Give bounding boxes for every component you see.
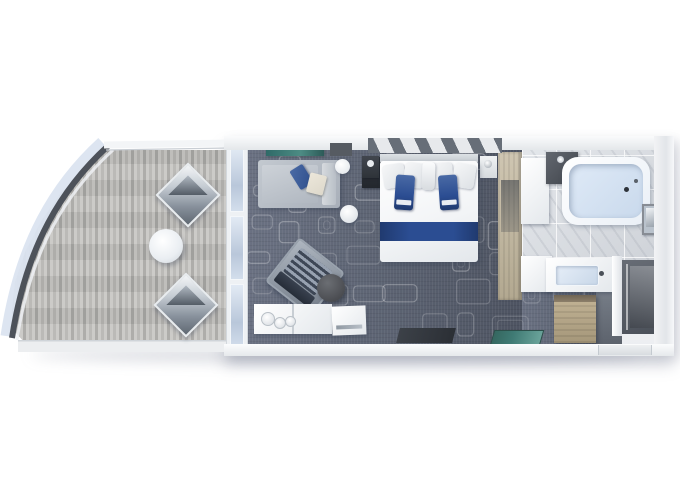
glass-pane: [230, 147, 244, 212]
bed-runner: [380, 222, 478, 241]
entry-closet: [554, 295, 596, 343]
blue-accent-pillow: [438, 174, 459, 210]
bathtub-faucet: [634, 179, 638, 183]
picture-art: [646, 208, 654, 227]
glassware: [274, 317, 286, 329]
entrance-door: [598, 345, 652, 355]
stateroom-floorplan: [0, 0, 680, 486]
glassware: [285, 316, 296, 327]
glass-pane: [230, 216, 244, 281]
sofa: [258, 160, 340, 208]
right-wall: [654, 136, 674, 356]
glassware: [261, 312, 275, 326]
glass-pane: [230, 284, 244, 349]
blue-accent-pillow: [394, 174, 415, 210]
bathtub: [562, 157, 650, 225]
nightstand-right: [480, 156, 497, 178]
wardrobe-interior: [501, 180, 519, 232]
bathtub-drain: [624, 187, 629, 192]
partition-wall: [612, 256, 622, 336]
console: [254, 304, 332, 334]
nightstand-left: [362, 156, 379, 178]
spotlight: [557, 156, 564, 163]
wall-lamp: [335, 159, 350, 174]
folded-towel: [422, 162, 436, 190]
side-table: [340, 205, 358, 223]
tall-cabinet: [521, 158, 549, 224]
accent-wall-top: [368, 138, 502, 153]
table-detail: [336, 325, 362, 330]
closet-top: [554, 295, 596, 302]
vanity: [546, 258, 612, 292]
double-bed: [380, 161, 478, 262]
floor-mat: [396, 328, 456, 343]
ottoman: [317, 274, 345, 302]
wall-segment-dark: [330, 143, 352, 152]
sink-basin: [555, 265, 599, 286]
coffee-table: [332, 305, 367, 335]
sink-faucet: [599, 271, 604, 276]
bathtub-basin: [569, 164, 643, 218]
nightstand-lamp: [367, 160, 374, 167]
wardrobe: [498, 152, 522, 300]
nightstand-lamp: [484, 160, 492, 168]
balcony-table: [149, 229, 183, 263]
balcony-railing: [2, 138, 248, 356]
balcony-sliding-door: [226, 143, 248, 353]
lounge-chair-cushion: [166, 285, 206, 325]
lounge-chair-cushion: [168, 175, 208, 215]
